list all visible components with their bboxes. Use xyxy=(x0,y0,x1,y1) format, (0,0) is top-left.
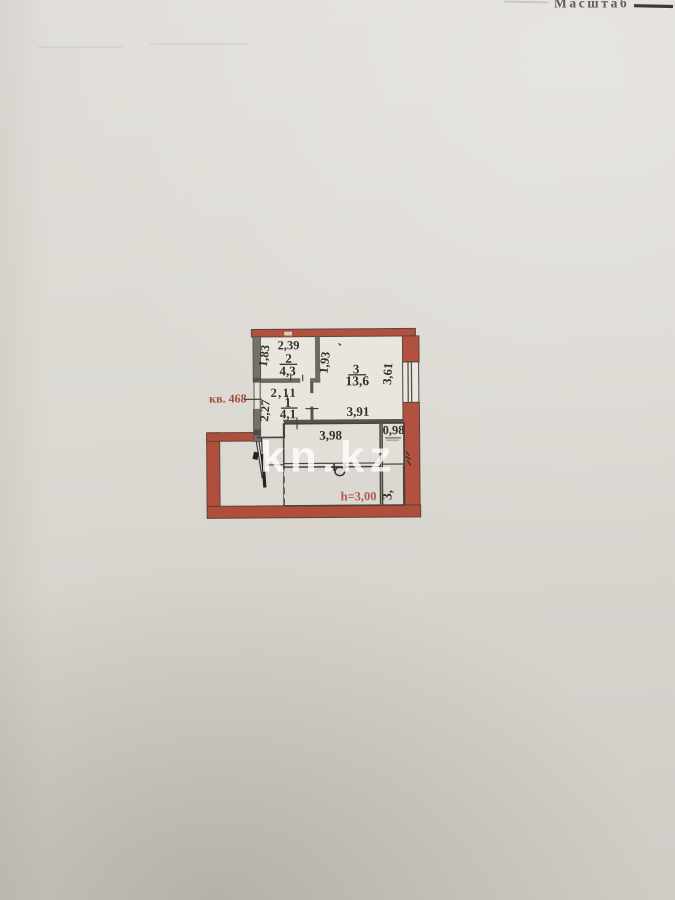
svg-text:1,93: 1,93 xyxy=(316,351,332,374)
svg-text:3,91: 3,91 xyxy=(347,404,370,419)
svg-text:3,: 3, xyxy=(379,490,394,501)
svg-text:3,61: 3,61 xyxy=(380,362,395,385)
svg-text:1,83: 1,83 xyxy=(256,344,273,368)
svg-text:kn.kz: kn.kz xyxy=(260,433,397,482)
svg-text:13,6: 13,6 xyxy=(345,373,369,388)
svg-text:Масштаб: Масштаб xyxy=(554,0,629,11)
svg-text:4,3: 4,3 xyxy=(279,363,296,378)
svg-text:2,27: 2,27 xyxy=(257,399,273,422)
svg-text:кв. 468: кв. 468 xyxy=(209,391,247,405)
svg-text:h=3,00: h=3,00 xyxy=(341,489,377,503)
svg-text:4,1: 4,1 xyxy=(280,406,296,421)
